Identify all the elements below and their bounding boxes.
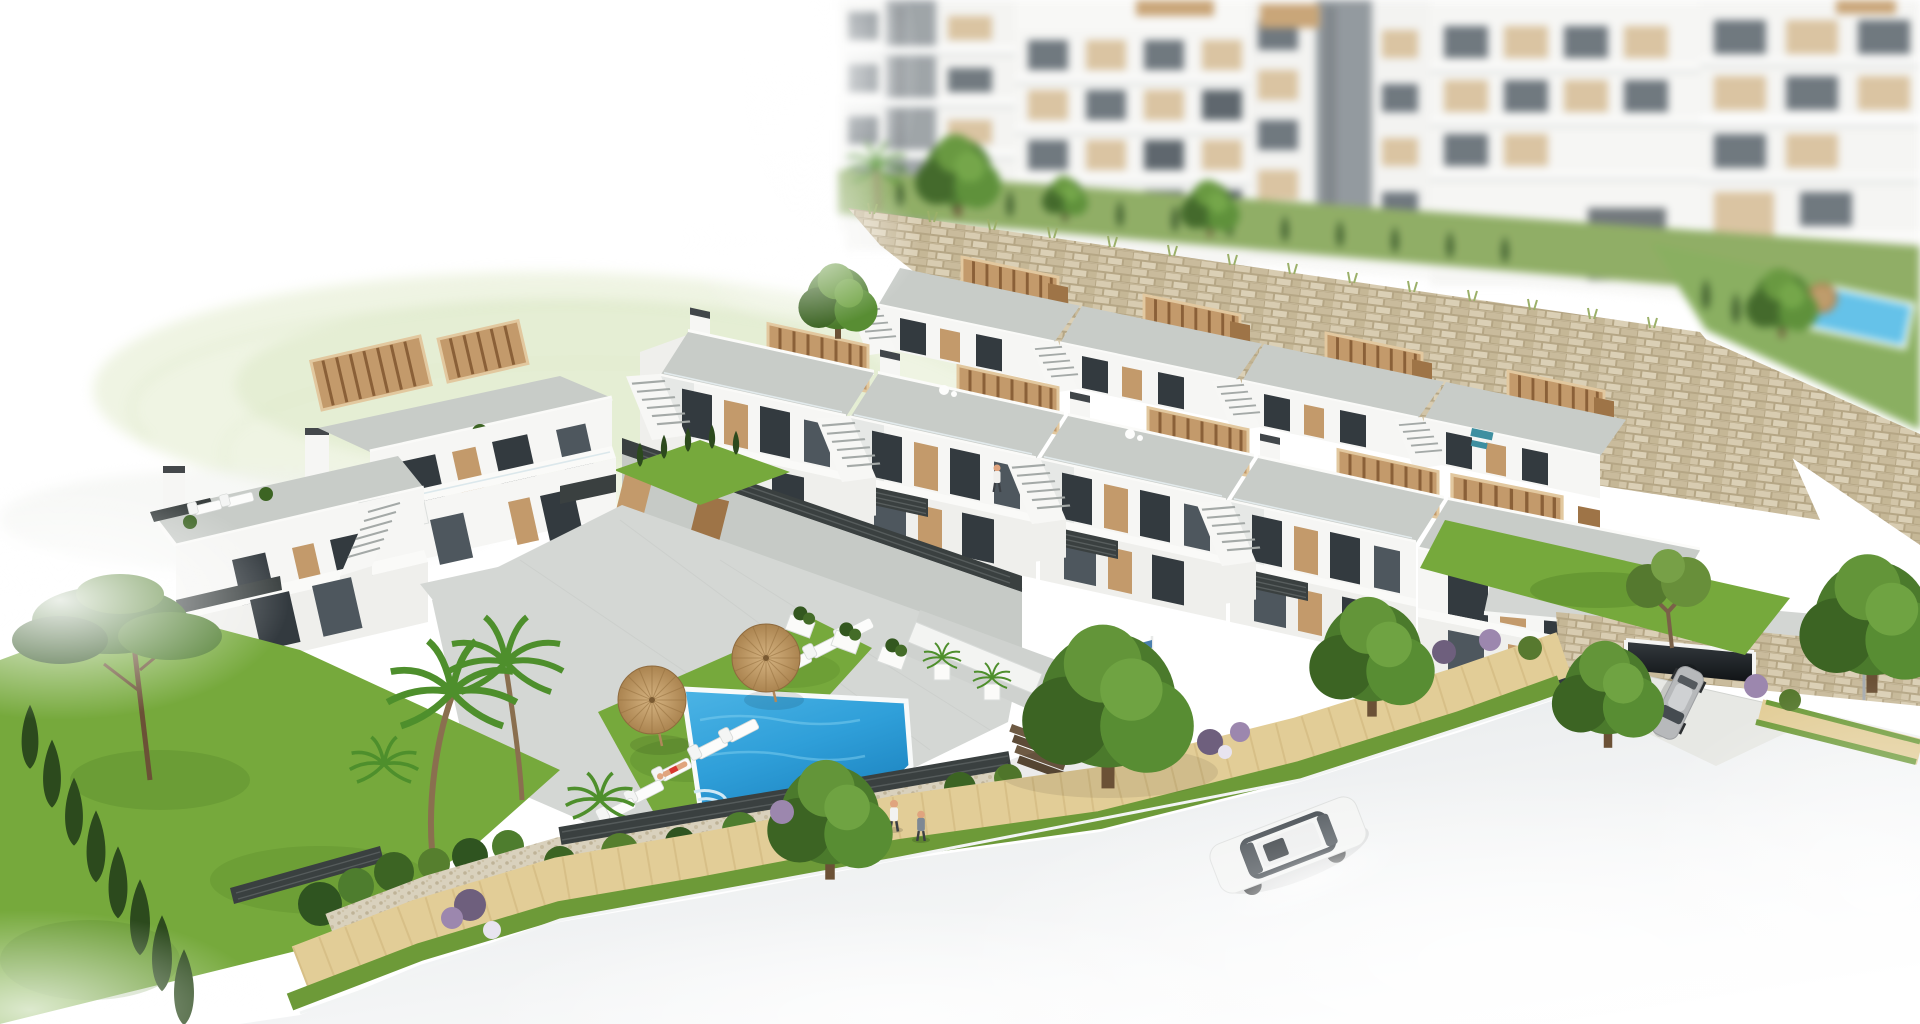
architectural-render xyxy=(0,0,1920,1024)
roof-pergola-bg xyxy=(1136,0,1214,16)
rendering-canvas xyxy=(0,0,1920,1024)
roof-pergola-bg xyxy=(1836,0,1896,14)
roof-pergola-bg xyxy=(1260,4,1320,28)
